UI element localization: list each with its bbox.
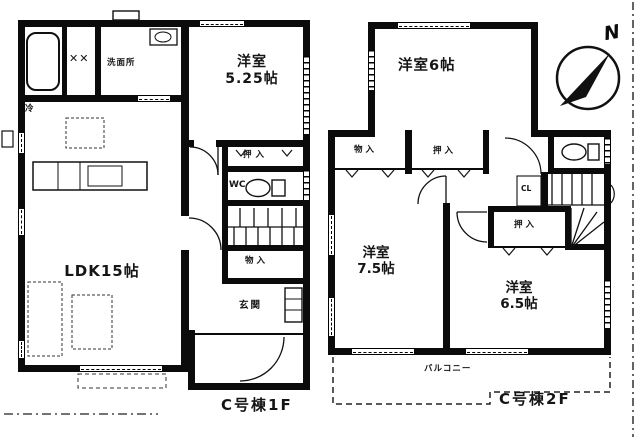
door-arc bbox=[505, 138, 541, 174]
closet-label-oshiire-65: 押入 bbox=[514, 220, 537, 230]
floor1-name: C号棟1F bbox=[221, 396, 293, 414]
door-arc bbox=[611, 185, 614, 203]
window bbox=[368, 50, 375, 90]
wall bbox=[531, 22, 538, 137]
bathtub-icon bbox=[27, 33, 59, 90]
wall bbox=[565, 244, 611, 250]
wall bbox=[216, 140, 310, 147]
window bbox=[18, 133, 25, 153]
wall bbox=[222, 147, 228, 251]
closet-door-line bbox=[494, 246, 565, 248]
wall bbox=[328, 130, 375, 137]
room-label-line: 6.5帖 bbox=[478, 296, 560, 312]
compass-icon bbox=[557, 47, 619, 109]
room-label-western-6: 洋室6帖 bbox=[398, 58, 456, 75]
room-label-line: 洋室 bbox=[208, 54, 296, 71]
wall bbox=[443, 203, 450, 355]
vent-bump bbox=[113, 11, 139, 20]
kitchen-counter-icon bbox=[33, 162, 147, 190]
closet-label-oshiire-2f: 押入 bbox=[433, 146, 456, 156]
wall bbox=[483, 130, 489, 174]
wall bbox=[222, 200, 310, 206]
toilet-icon bbox=[246, 180, 285, 197]
fridge-label: 冷 bbox=[25, 104, 34, 114]
window bbox=[466, 348, 528, 355]
dining-table-icon bbox=[66, 118, 104, 148]
wall bbox=[222, 166, 310, 172]
room-label-wc-1f: WC bbox=[229, 180, 246, 191]
toilet-icon bbox=[562, 144, 599, 160]
wall bbox=[188, 383, 310, 390]
wall bbox=[188, 140, 194, 147]
closet-door-line bbox=[412, 168, 483, 170]
vanity-icon bbox=[150, 29, 177, 45]
closet-label-cl: CL bbox=[521, 184, 531, 193]
wall bbox=[222, 245, 310, 251]
window bbox=[303, 170, 310, 200]
wall bbox=[188, 330, 195, 390]
closet-door-line bbox=[335, 168, 405, 170]
meter-box-icon bbox=[2, 131, 13, 147]
floorplan-canvas: 洗面所 ✕✕ 洋室 5.25帖 押入 WC 物入 玄関 冷 LDK15帖 C号棟… bbox=[0, 0, 640, 439]
wall bbox=[95, 20, 101, 95]
wall bbox=[488, 206, 494, 248]
window bbox=[303, 56, 310, 134]
door-arc bbox=[189, 218, 221, 250]
door-opening bbox=[181, 216, 189, 250]
room-label-line: 7.5帖 bbox=[345, 261, 407, 277]
entry-door-arc bbox=[240, 337, 284, 381]
window bbox=[200, 20, 244, 27]
wall bbox=[62, 20, 67, 95]
wall bbox=[548, 168, 611, 174]
room-label-western-525: 洋室 5.25帖 bbox=[208, 54, 296, 88]
room-label-washroom: 洗面所 bbox=[107, 58, 136, 68]
entry-step-line bbox=[193, 333, 303, 335]
window bbox=[352, 348, 414, 355]
room-label-western-75: 洋室 7.5帖 bbox=[345, 245, 407, 277]
table-icon bbox=[72, 295, 112, 349]
room-label-line: 洋室 bbox=[478, 280, 560, 296]
window bbox=[604, 138, 611, 164]
door-arc bbox=[190, 147, 218, 175]
wall bbox=[181, 20, 189, 365]
wall bbox=[565, 206, 571, 250]
wall bbox=[405, 130, 412, 174]
window bbox=[604, 280, 611, 328]
room-label-western-65: 洋室 6.5帖 bbox=[478, 280, 560, 312]
stairs-1f bbox=[228, 208, 303, 245]
room-label-ldk: LDK15帖 bbox=[42, 262, 162, 280]
floor2-name: C号棟2F bbox=[499, 390, 571, 408]
wall bbox=[531, 130, 611, 137]
wall bbox=[222, 278, 310, 284]
closet-label-monoire-1f: 物入 bbox=[245, 256, 268, 266]
compass-north-label: N bbox=[602, 21, 621, 45]
window bbox=[328, 298, 335, 336]
wall bbox=[488, 206, 571, 212]
laundry-marks: ✕✕ bbox=[69, 52, 89, 65]
closet-label-oshiire-1f: 押入 bbox=[243, 150, 268, 160]
window bbox=[18, 341, 25, 358]
window bbox=[18, 209, 25, 235]
shoe-cabinet-icon bbox=[285, 288, 302, 322]
balcony-label: バルコニー bbox=[424, 364, 471, 374]
sofa-icon bbox=[28, 282, 62, 356]
sliding-door bbox=[138, 95, 170, 102]
wall bbox=[18, 20, 25, 372]
door-arc bbox=[457, 212, 487, 242]
wall bbox=[303, 330, 310, 390]
room-label-line: 5.25帖 bbox=[208, 71, 296, 88]
closet-label-monoire-2f: 物入 bbox=[354, 145, 377, 155]
window bbox=[398, 22, 470, 29]
room-label-entrance: 玄関 bbox=[239, 300, 262, 311]
terrace-step bbox=[78, 374, 166, 388]
window bbox=[328, 215, 335, 255]
door-arc bbox=[418, 176, 446, 204]
room-label-line: 洋室 bbox=[345, 245, 407, 261]
window bbox=[80, 365, 162, 372]
